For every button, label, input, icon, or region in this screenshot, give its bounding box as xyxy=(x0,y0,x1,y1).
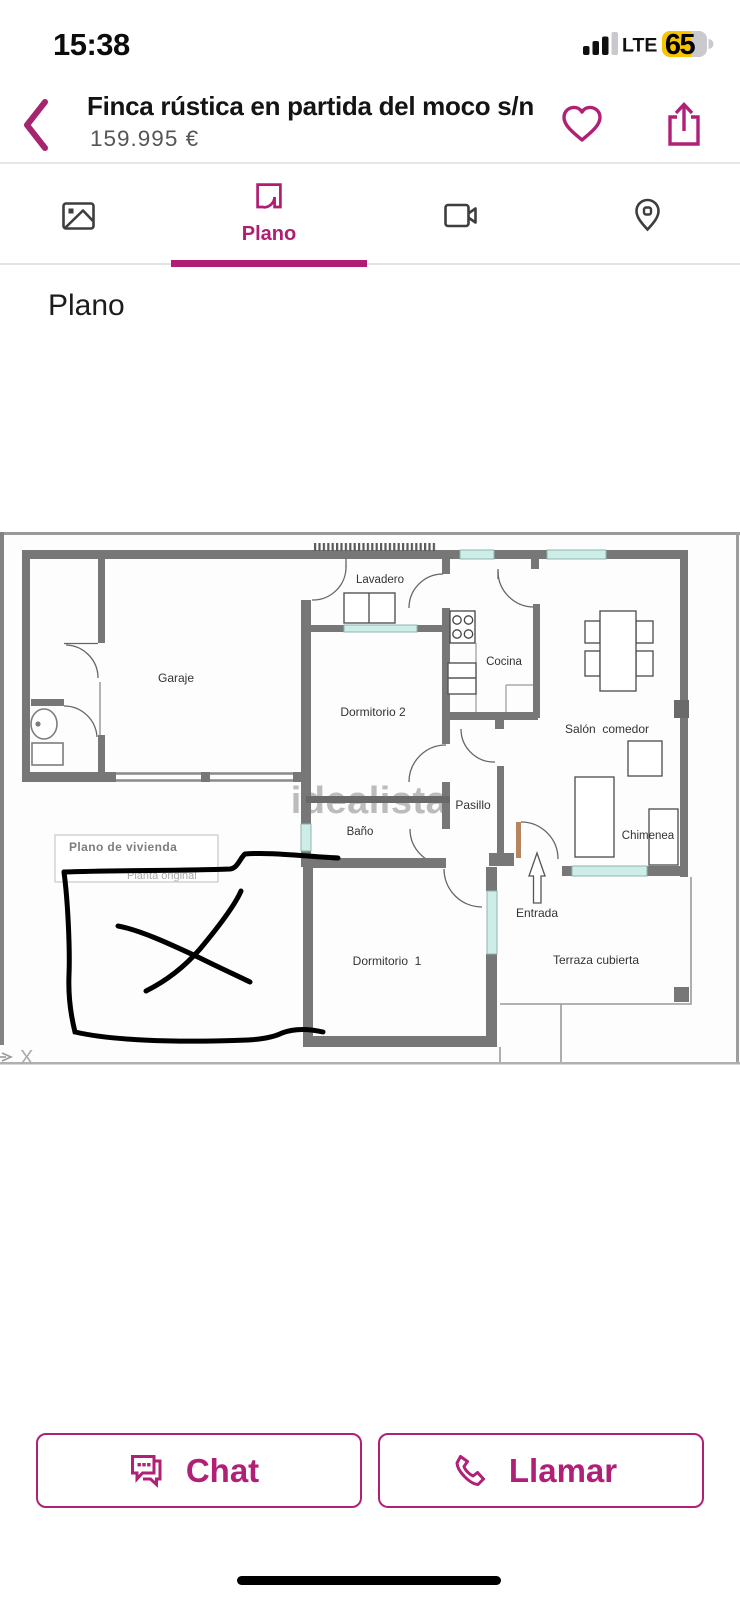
svg-text:Plano de vivienda: Plano de vivienda xyxy=(69,840,177,854)
svg-text:Baño: Baño xyxy=(347,826,374,838)
svg-text:Garaje: Garaje xyxy=(158,671,194,685)
svg-text:X: X xyxy=(20,1047,33,1066)
svg-text:Terraza cubierta: Terraza cubierta xyxy=(553,953,639,967)
svg-text:Dormitorio 1: Dormitorio 1 xyxy=(353,954,422,968)
svg-text:Cocina: Cocina xyxy=(486,656,522,668)
svg-text:LTE: LTE xyxy=(622,35,657,57)
svg-text:Dormitorio 2: Dormitorio 2 xyxy=(340,705,406,719)
svg-text:Entrada: Entrada xyxy=(516,906,558,920)
svg-text:Salón comedor: Salón comedor xyxy=(565,722,649,736)
svg-text:Chimenea: Chimenea xyxy=(622,830,675,842)
svg-text:65: 65 xyxy=(665,29,696,61)
svg-text:Lavadero: Lavadero xyxy=(356,574,404,586)
svg-text:Pasillo: Pasillo xyxy=(455,798,491,812)
